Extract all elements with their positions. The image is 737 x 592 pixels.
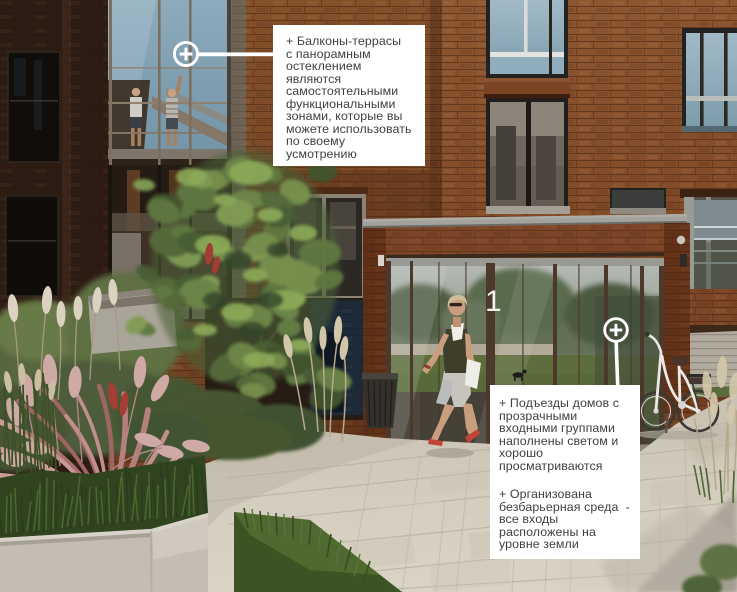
svg-text:1: 1: [485, 285, 502, 318]
